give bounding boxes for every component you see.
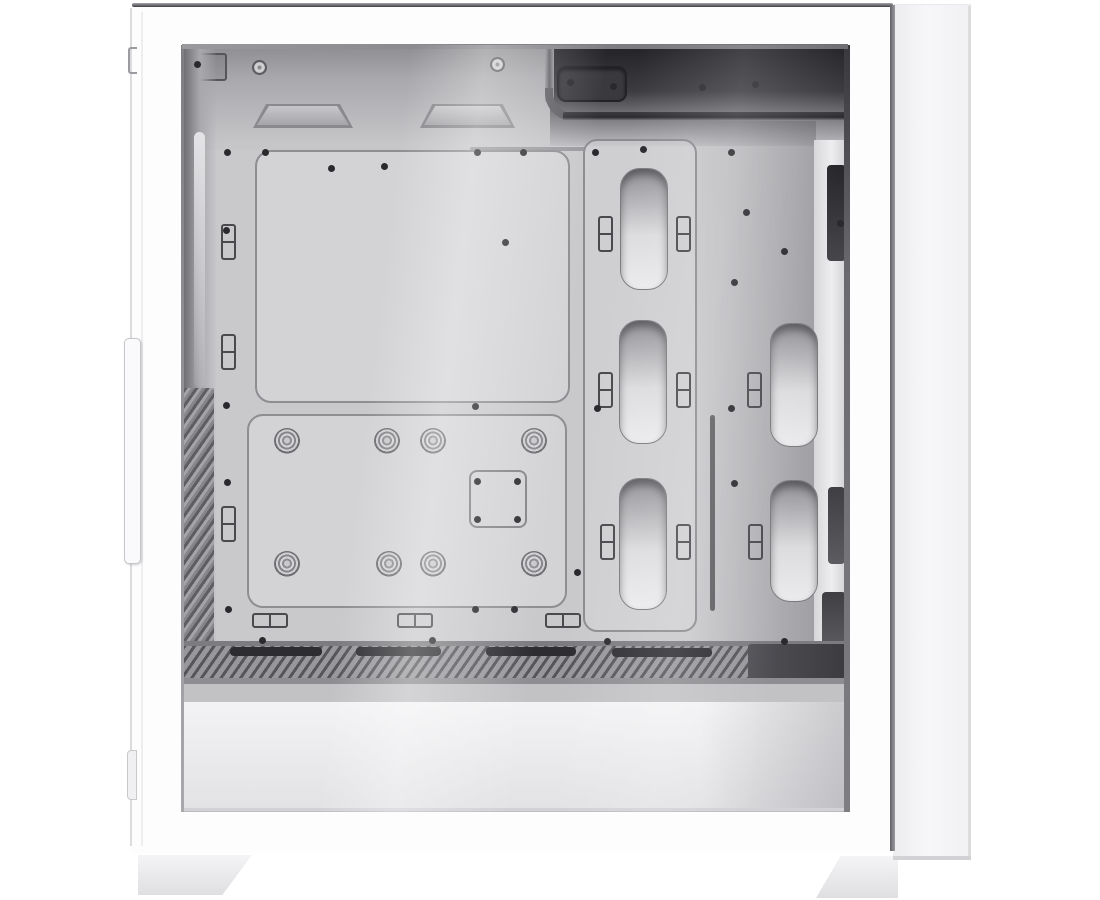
rear-exterior-panel <box>893 4 971 860</box>
front-panel-notch <box>128 47 137 74</box>
glass-reflection <box>182 45 850 812</box>
front-panel-tab <box>127 750 137 800</box>
front-panel-trim <box>124 338 141 564</box>
front-panel-seam <box>141 12 143 846</box>
rear-panel-bottom-edge <box>893 856 971 860</box>
right-foot <box>816 856 898 898</box>
case-right-edge <box>890 5 895 851</box>
left-foot <box>138 855 252 895</box>
pc-case-product-photo <box>0 0 1100 900</box>
rear-panel-right-edge <box>968 6 971 856</box>
case-top-edge <box>132 3 893 7</box>
